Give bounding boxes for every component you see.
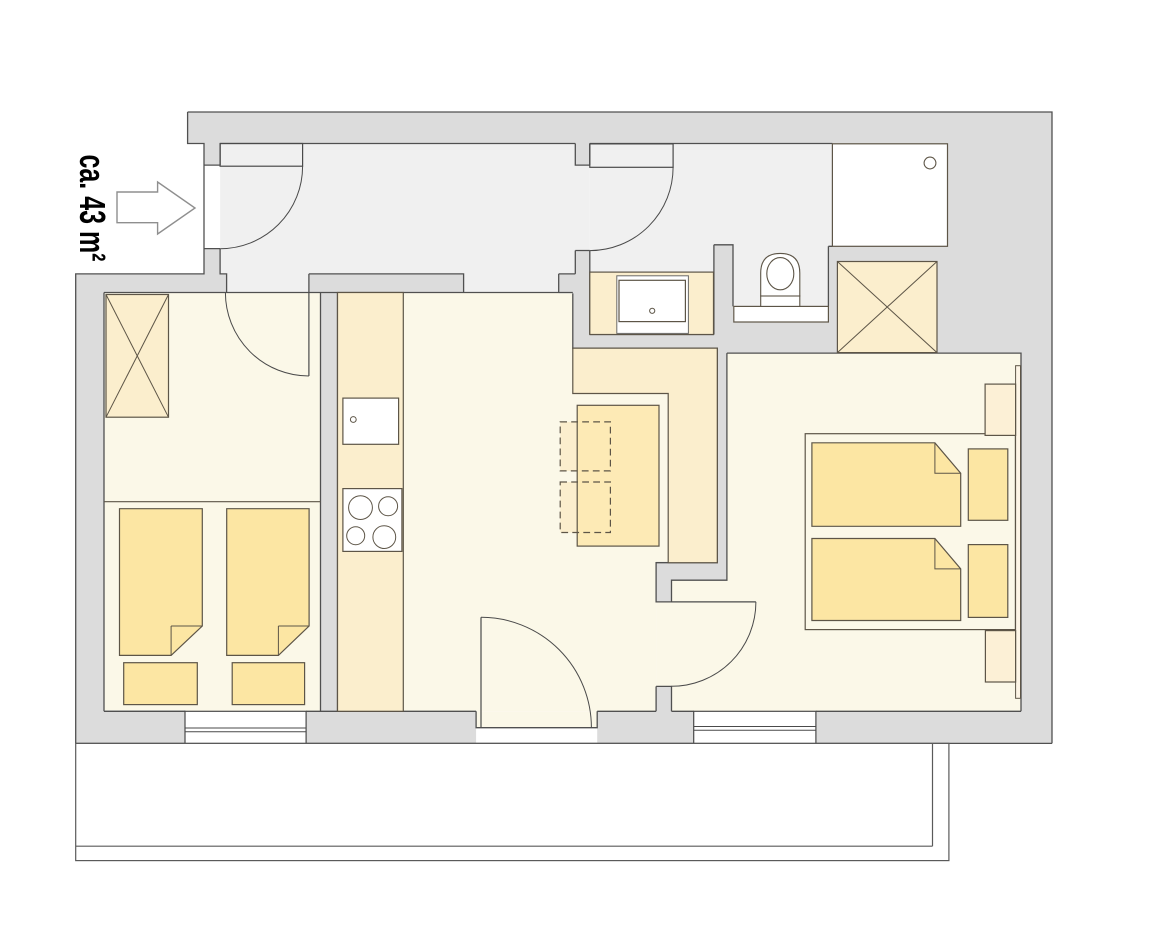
svg-text:ca. 43 m²: ca. 43 m²: [72, 155, 113, 262]
